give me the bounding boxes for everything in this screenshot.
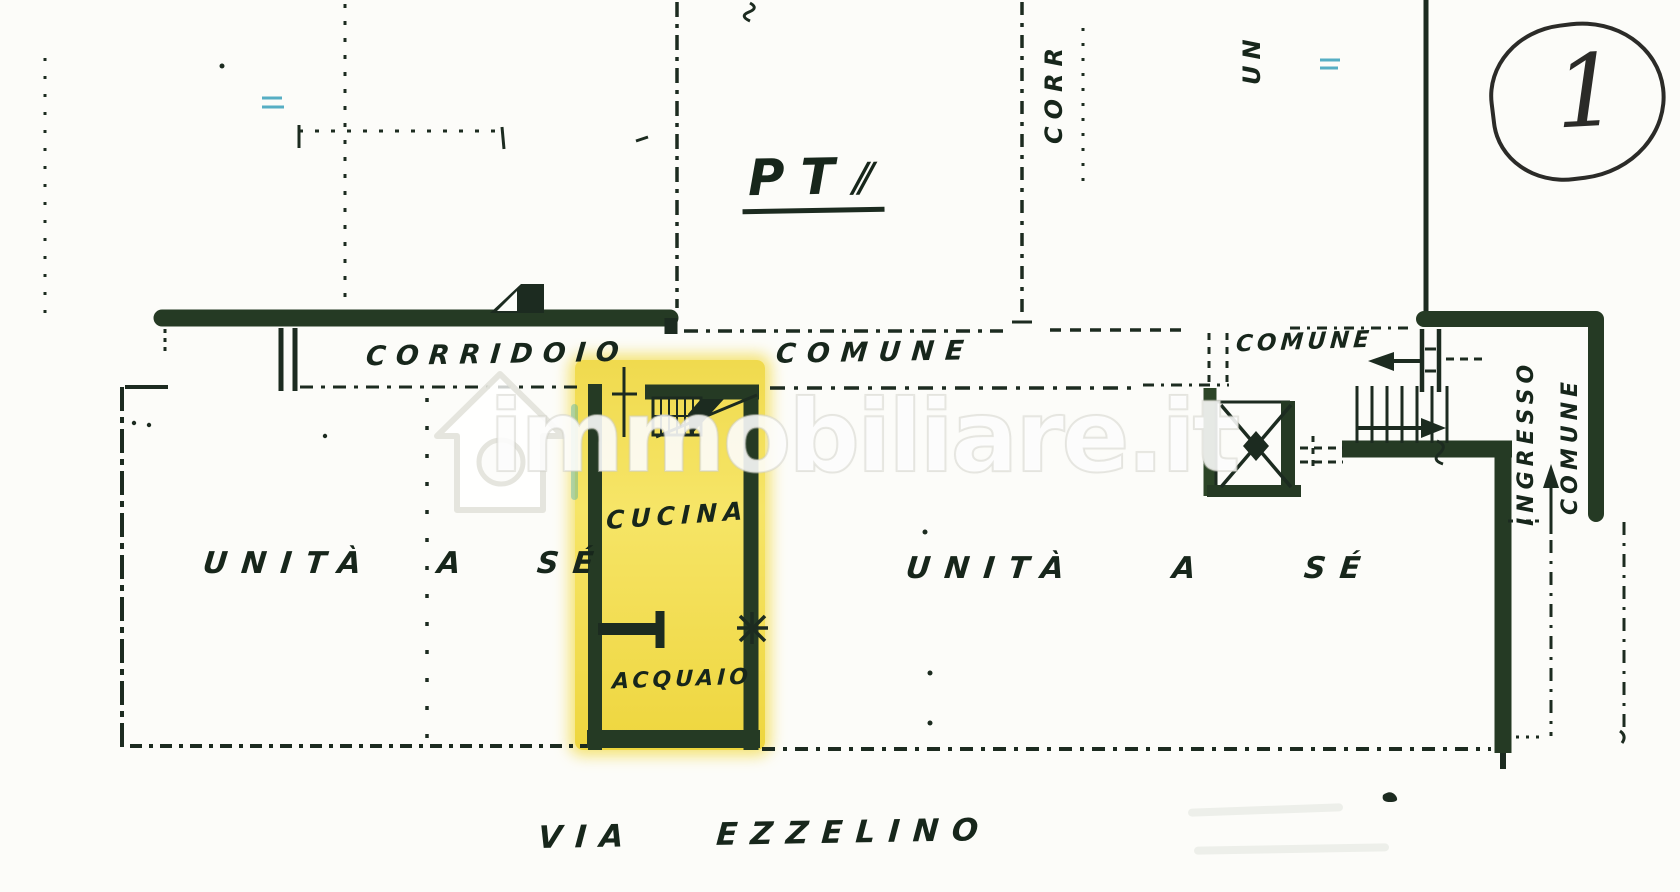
corridor-comune-label: COMUNE: [775, 335, 976, 370]
plan-linework: [0, 0, 1680, 892]
floor-label: PT⫽: [741, 147, 884, 214]
sink-label: ACQUAIO: [612, 665, 753, 695]
comune-left-arrow: [1368, 352, 1424, 371]
edge-label-un: UN: [1238, 0, 1266, 85]
top-construction-lines: [45, 0, 1426, 322]
corridor-walls: [162, 284, 1596, 514]
floor-label-mark: ⫽: [850, 154, 870, 203]
unit-right-label: UNITÀ A SÉ: [904, 551, 1376, 586]
asterisk-mark: [737, 612, 768, 644]
floor-plan-scan: PT⫽ CORR UN CORRIDOIO COMUNE COMUNE CUCI…: [0, 0, 1680, 892]
edge-label-corr: CORR: [1040, 0, 1068, 144]
entrance-label-comune: COMUNE: [1558, 350, 1583, 515]
unit-left-label: UNITÀ A SÉ: [201, 546, 609, 581]
entrance-up-arrow: [1543, 464, 1559, 534]
corridor-label: CORRIDOIO: [365, 337, 630, 373]
floor-label-text: PT: [747, 147, 851, 207]
stair-hall-comune-label: COMUNE: [1235, 327, 1374, 358]
kitchen-stairs-hatch: [653, 395, 757, 437]
sheet-number: 1: [1552, 31, 1622, 151]
entrance-label-ingresso: INGRESSO: [1514, 336, 1539, 526]
street-marks: [1383, 792, 1398, 802]
stair-treads: [1357, 386, 1447, 443]
